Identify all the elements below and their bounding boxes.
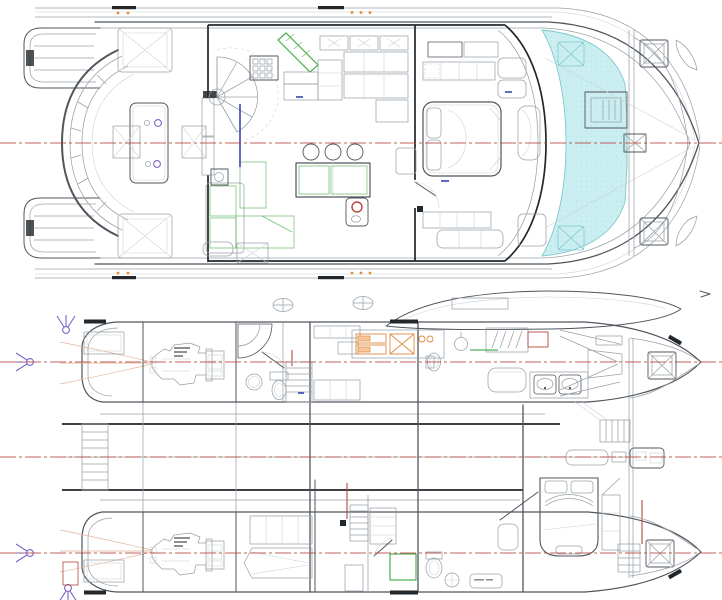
forward-cabin-port — [498, 478, 642, 572]
cockpit-hatch-starboard — [118, 28, 172, 72]
salon-aft-bench — [203, 242, 268, 263]
spiral-staircase — [209, 48, 278, 140]
galley-island — [296, 144, 370, 226]
galley-down — [298, 330, 444, 393]
cockpit-side-table-right — [182, 126, 206, 158]
companionway-steps — [278, 33, 318, 72]
aft-sponson-port — [24, 198, 100, 258]
catamaran-plan-drawing — [0, 0, 722, 600]
cockpit-settee — [62, 50, 134, 236]
aft-sponson-starboard — [24, 28, 100, 88]
master-bed — [423, 102, 501, 176]
cockpit-side-table-left — [113, 126, 140, 158]
salon-walls — [202, 25, 546, 262]
tender-dinghy — [386, 291, 681, 330]
hull-port — [15, 478, 701, 600]
centerboard-trunk — [566, 448, 664, 468]
cockpit-hatch-port — [118, 214, 172, 258]
vanity-twin-sinks — [530, 372, 588, 398]
hull-starboard — [15, 315, 701, 442]
salon-sofa — [206, 104, 416, 253]
stairs-forward-starboard — [575, 402, 630, 442]
mid-cabin-port — [244, 483, 396, 591]
bathroom-port — [374, 538, 502, 588]
stairs-starboard — [286, 362, 312, 402]
drawing-canvas — [0, 0, 722, 600]
galley — [250, 33, 408, 122]
overhead-lockers — [320, 36, 408, 50]
hanging-locker — [486, 328, 528, 352]
master-cabin — [423, 42, 546, 248]
